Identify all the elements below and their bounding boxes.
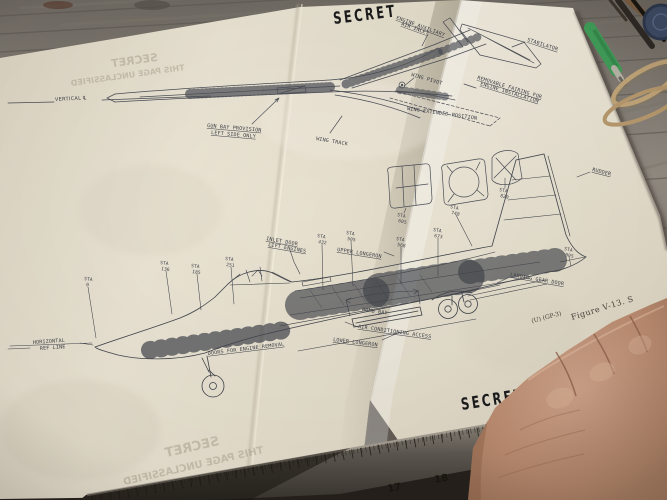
vignette	[0, 0, 667, 500]
photo-of-secret-foldout: SECRET THIS PAGE UNCLASSIFIED SECRET THI…	[0, 0, 667, 500]
